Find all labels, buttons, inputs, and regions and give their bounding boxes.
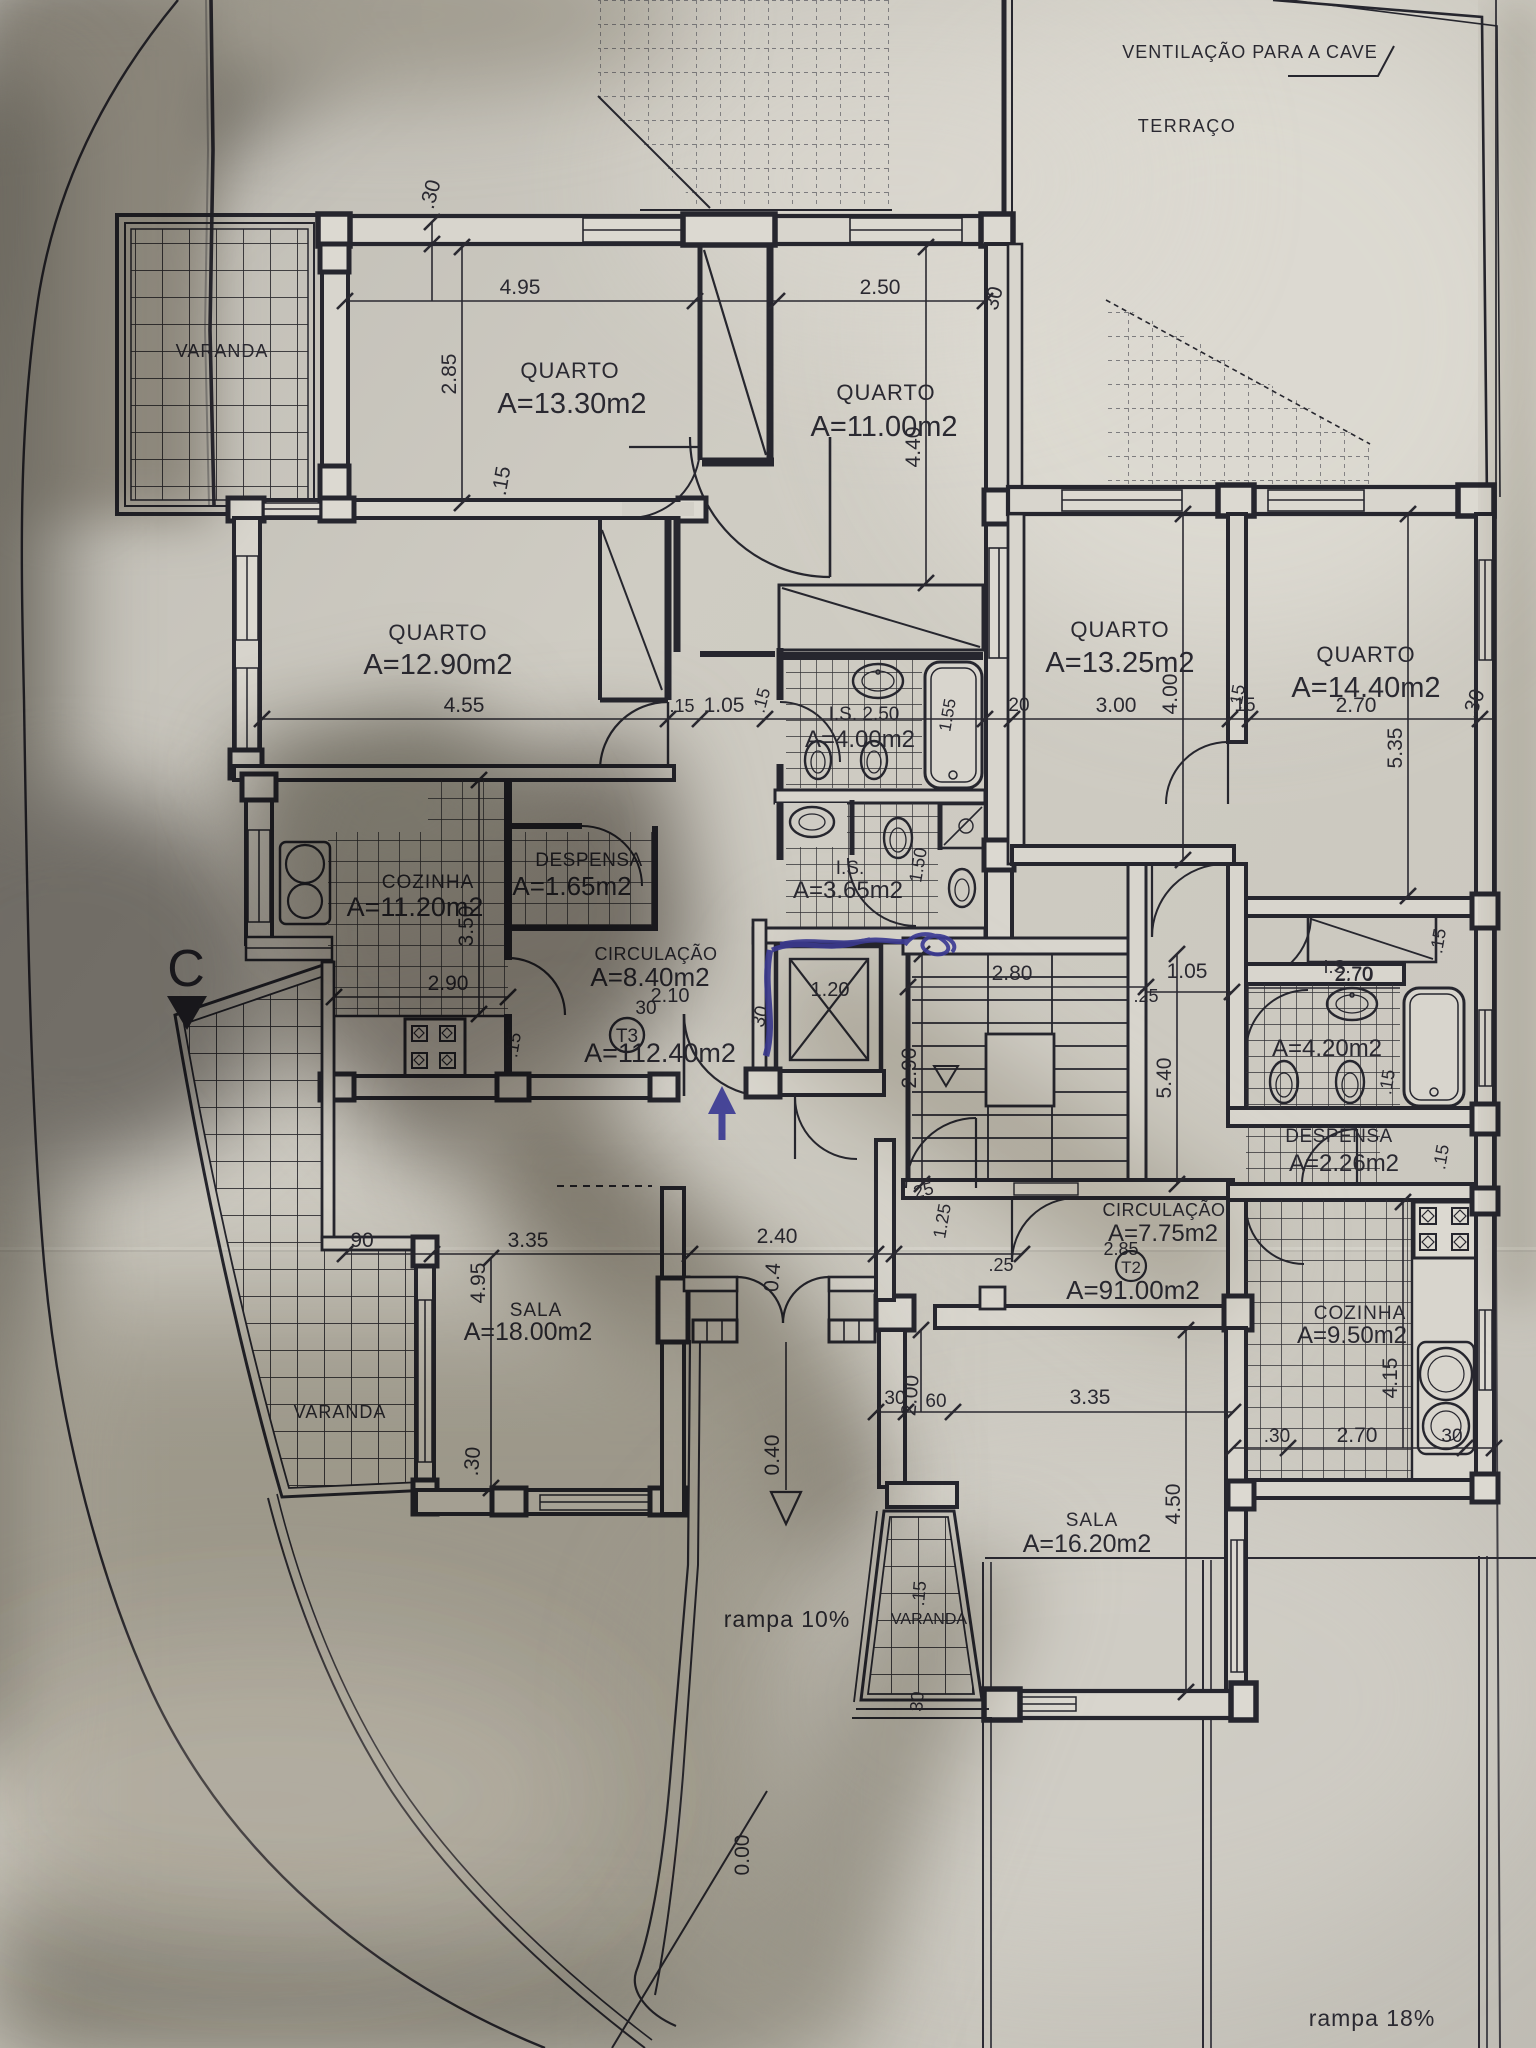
- svg-text:A=13.30m2: A=13.30m2: [497, 388, 646, 420]
- svg-text:.25: .25: [988, 1255, 1013, 1275]
- svg-text:60: 60: [925, 1391, 946, 1412]
- svg-text:I.S.: I.S.: [836, 858, 865, 879]
- svg-text:4.00: 4.00: [1159, 674, 1182, 715]
- svg-text:COZINHA: COZINHA: [1314, 1303, 1407, 1324]
- svg-text:SALA: SALA: [1066, 1510, 1119, 1531]
- svg-text:5.40: 5.40: [1153, 1058, 1176, 1099]
- svg-text:A=11.00m2: A=11.00m2: [811, 411, 958, 443]
- svg-text:4.95: 4.95: [500, 276, 541, 299]
- svg-text:30: 30: [1441, 1426, 1462, 1447]
- svg-text:A=3.65m2: A=3.65m2: [793, 877, 903, 904]
- svg-text:2.50: 2.50: [860, 276, 901, 299]
- svg-text:5.35: 5.35: [1384, 728, 1407, 769]
- svg-text:90: 90: [350, 1229, 373, 1252]
- svg-text:1.05: 1.05: [1167, 960, 1208, 983]
- svg-text:4.40: 4.40: [902, 427, 925, 468]
- svg-text:DESPENSA: DESPENSA: [1285, 1126, 1392, 1147]
- svg-text:1.05: 1.05: [704, 694, 745, 717]
- svg-text:A=16.20m2: A=16.20m2: [1023, 1530, 1152, 1558]
- svg-text:4.50: 4.50: [1162, 1484, 1185, 1525]
- svg-text:4.15: 4.15: [1379, 1358, 1402, 1399]
- svg-text:.15: .15: [1429, 1143, 1453, 1171]
- svg-text:2.40: 2.40: [757, 1225, 798, 1248]
- svg-text:QUARTO: QUARTO: [520, 358, 619, 383]
- svg-text:20: 20: [1008, 695, 1029, 716]
- svg-text:.30: .30: [1264, 1426, 1290, 1447]
- svg-text:.15: .15: [1426, 927, 1450, 955]
- svg-text:2.70: 2.70: [1336, 964, 1373, 985]
- svg-text:QUARTO: QUARTO: [1070, 617, 1169, 642]
- svg-text:2.70: 2.70: [1337, 1424, 1378, 1447]
- svg-text:A=9.50m2: A=9.50m2: [1297, 1322, 1407, 1349]
- svg-text:2.70: 2.70: [1336, 694, 1377, 717]
- svg-text:.15: .15: [1225, 683, 1249, 711]
- svg-text:A=4.20m2: A=4.20m2: [1272, 1035, 1382, 1062]
- svg-text:A=4.00m2: A=4.00m2: [805, 726, 915, 753]
- svg-text:QUARTO: QUARTO: [1316, 642, 1415, 667]
- svg-text:4.95: 4.95: [467, 1263, 490, 1304]
- svg-text:rampa 18%: rampa 18%: [1309, 2005, 1436, 2031]
- svg-text:QUARTO: QUARTO: [836, 380, 935, 405]
- svg-text:.15: .15: [1375, 1068, 1399, 1096]
- svg-text:VENTILAÇÃO PARA A CAVE: VENTILAÇÃO PARA A CAVE: [1122, 41, 1377, 62]
- svg-text:3.00: 3.00: [1096, 694, 1137, 717]
- svg-text:2.00: 2.00: [897, 1374, 923, 1417]
- svg-text:TERRAÇO: TERRAÇO: [1138, 116, 1237, 136]
- svg-text:3.35: 3.35: [1070, 1386, 1111, 1409]
- svg-text:2.80: 2.80: [992, 962, 1033, 985]
- svg-text:0.4: 0.4: [760, 1262, 785, 1293]
- svg-text:QUARTO: QUARTO: [388, 620, 487, 645]
- svg-text:.25: .25: [1133, 986, 1158, 1006]
- svg-text:A=2.26m2: A=2.26m2: [1289, 1150, 1399, 1177]
- svg-text:2.85: 2.85: [438, 354, 461, 395]
- svg-text:A=12.90m2: A=12.90m2: [363, 649, 512, 681]
- svg-text:I.S. 2.50: I.S. 2.50: [829, 704, 900, 725]
- svg-text:.15: .15: [669, 696, 694, 716]
